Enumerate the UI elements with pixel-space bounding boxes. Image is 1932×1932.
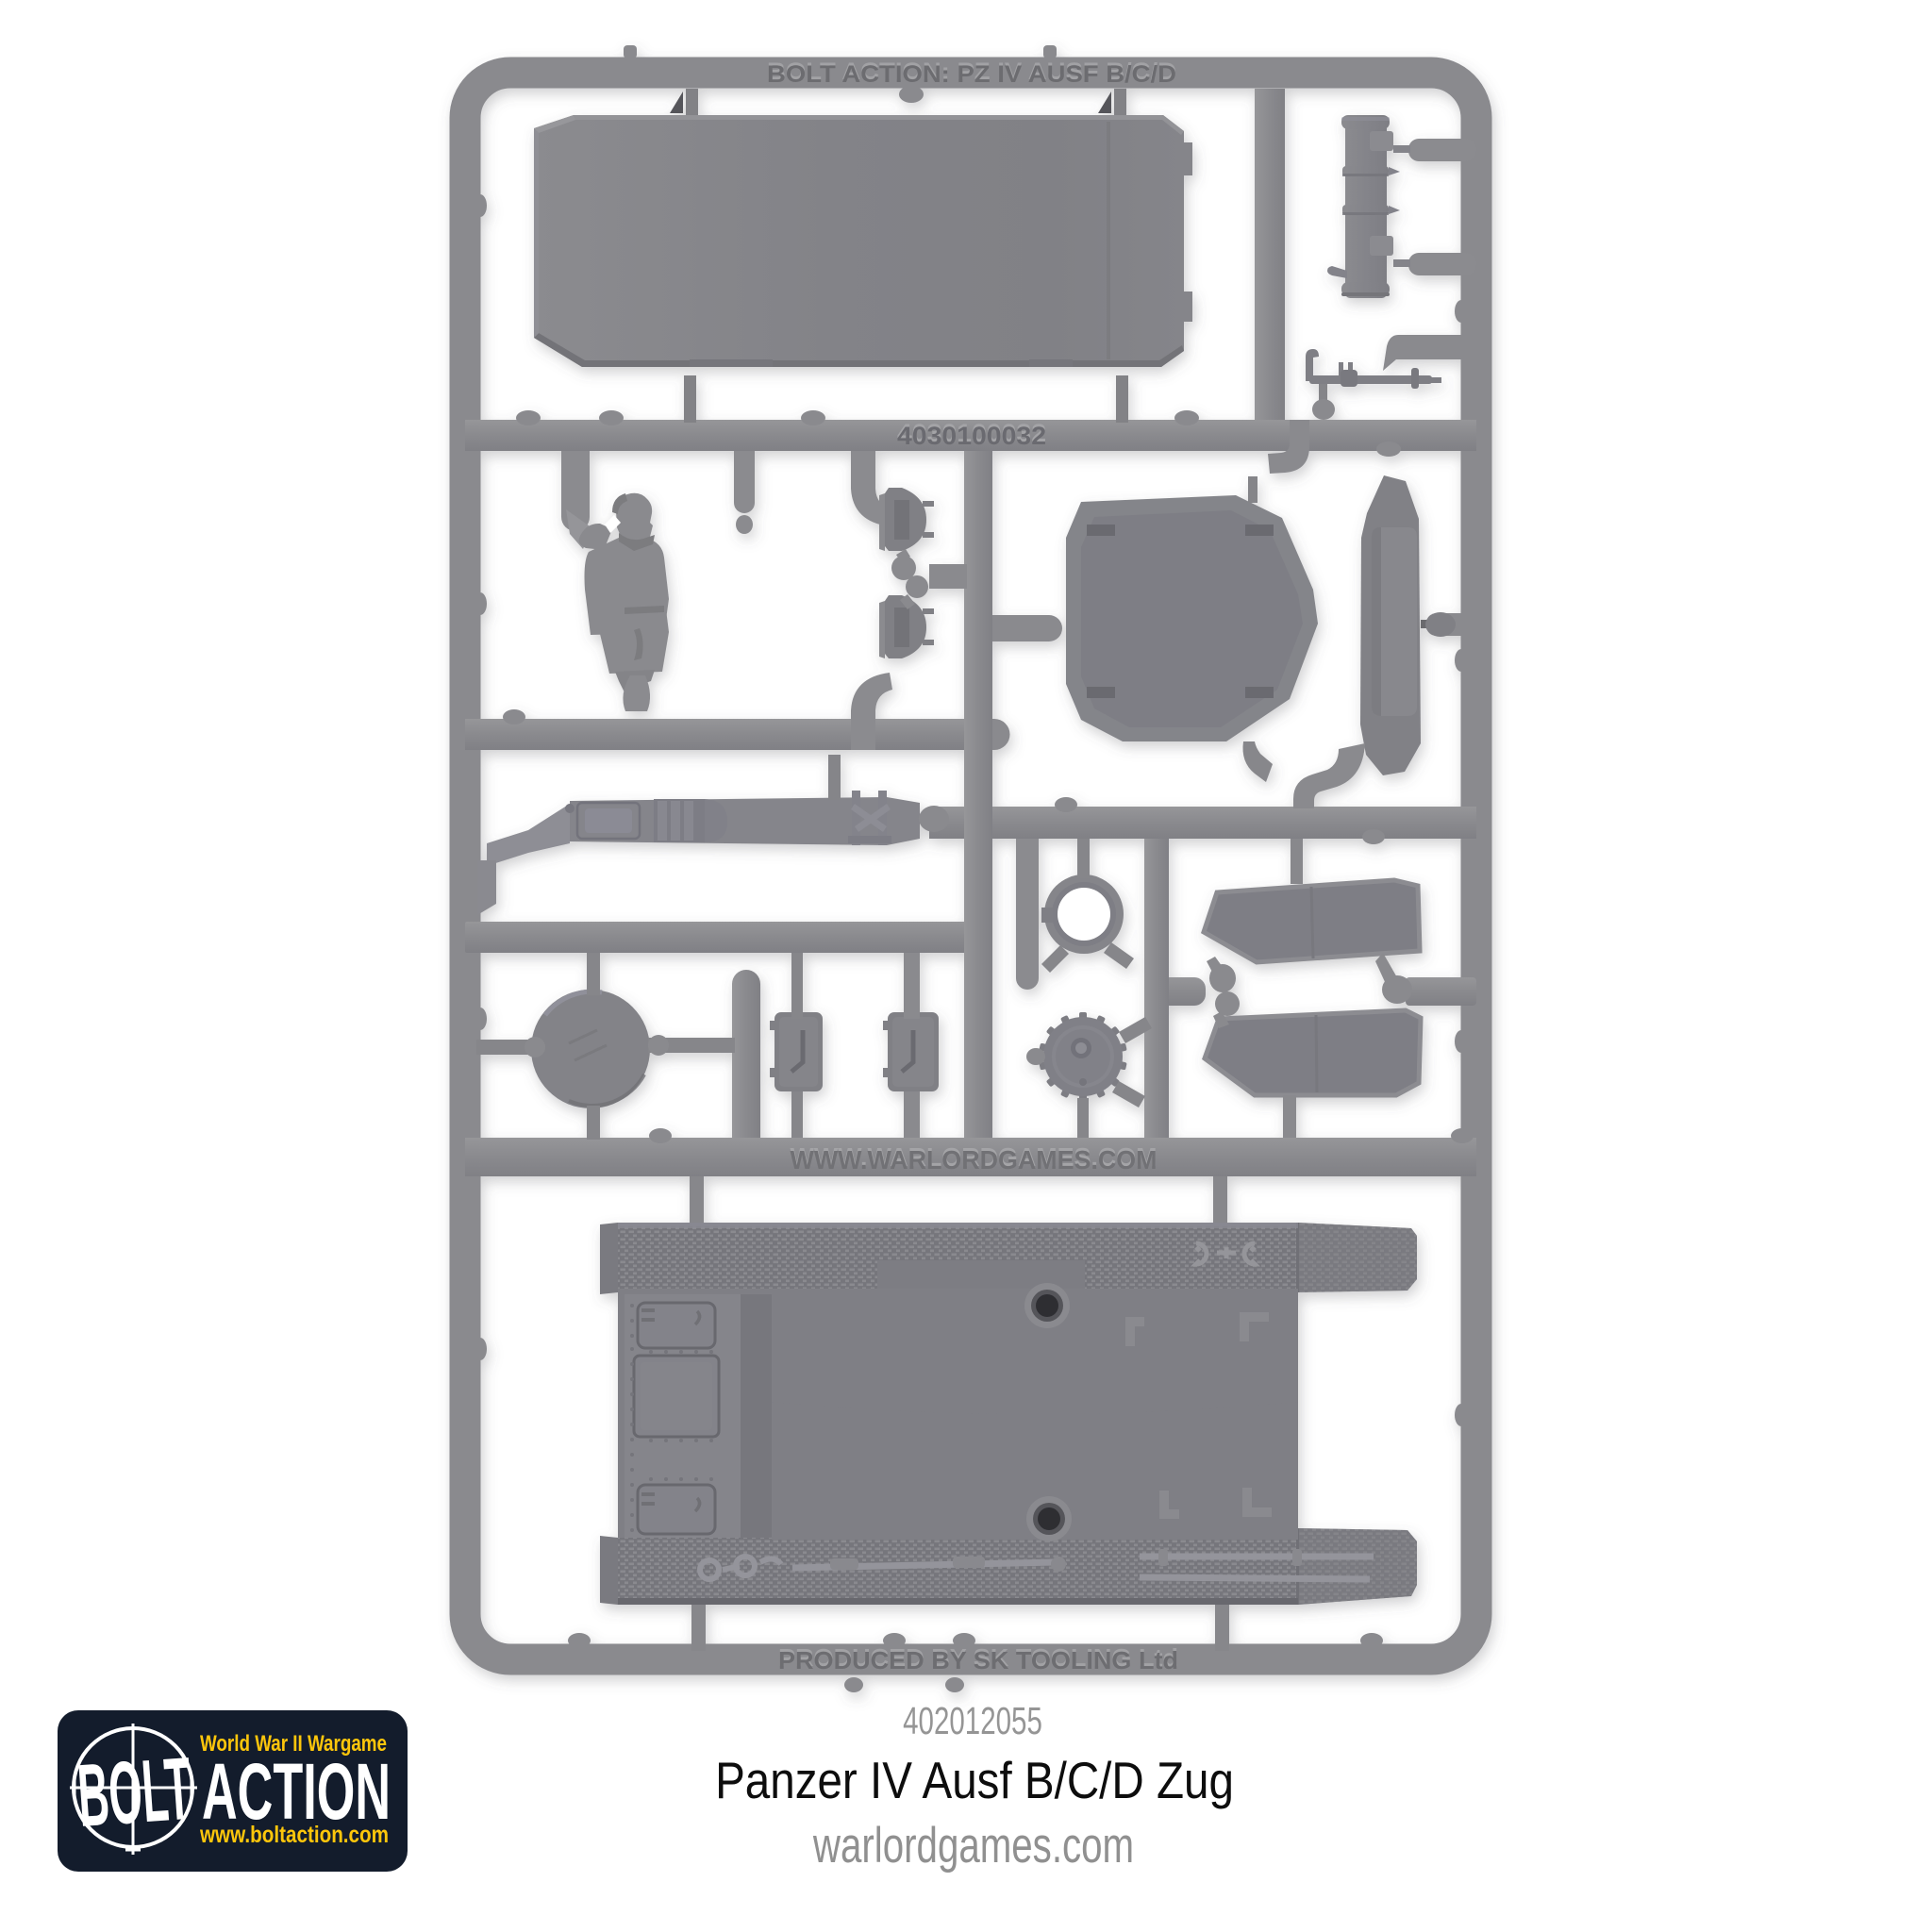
- svg-text:warlordgames.com: warlordgames.com: [812, 1817, 1134, 1874]
- svg-text:Panzer IV Ausf B/C/D Zug: Panzer IV Ausf B/C/D Zug: [715, 1751, 1234, 1809]
- svg-text:World War II Wargame: World War II Wargame: [200, 1731, 387, 1757]
- svg-text:BOLT: BOLT: [75, 1739, 194, 1845]
- svg-text:402012055: 402012055: [903, 1699, 1042, 1742]
- svg-text:4030100032: 4030100032: [897, 422, 1046, 450]
- svg-text:www.boltaction.com: www.boltaction.com: [199, 1822, 389, 1848]
- svg-text:PRODUCED BY SK TOOLING Ltd: PRODUCED BY SK TOOLING Ltd: [778, 1646, 1178, 1674]
- svg-text:BOLT ACTION: PZ IV AUSF B/C/D: BOLT ACTION: PZ IV AUSF B/C/D: [767, 61, 1176, 88]
- svg-text:WWW.WARLORDGAMES.COM: WWW.WARLORDGAMES.COM: [791, 1145, 1158, 1174]
